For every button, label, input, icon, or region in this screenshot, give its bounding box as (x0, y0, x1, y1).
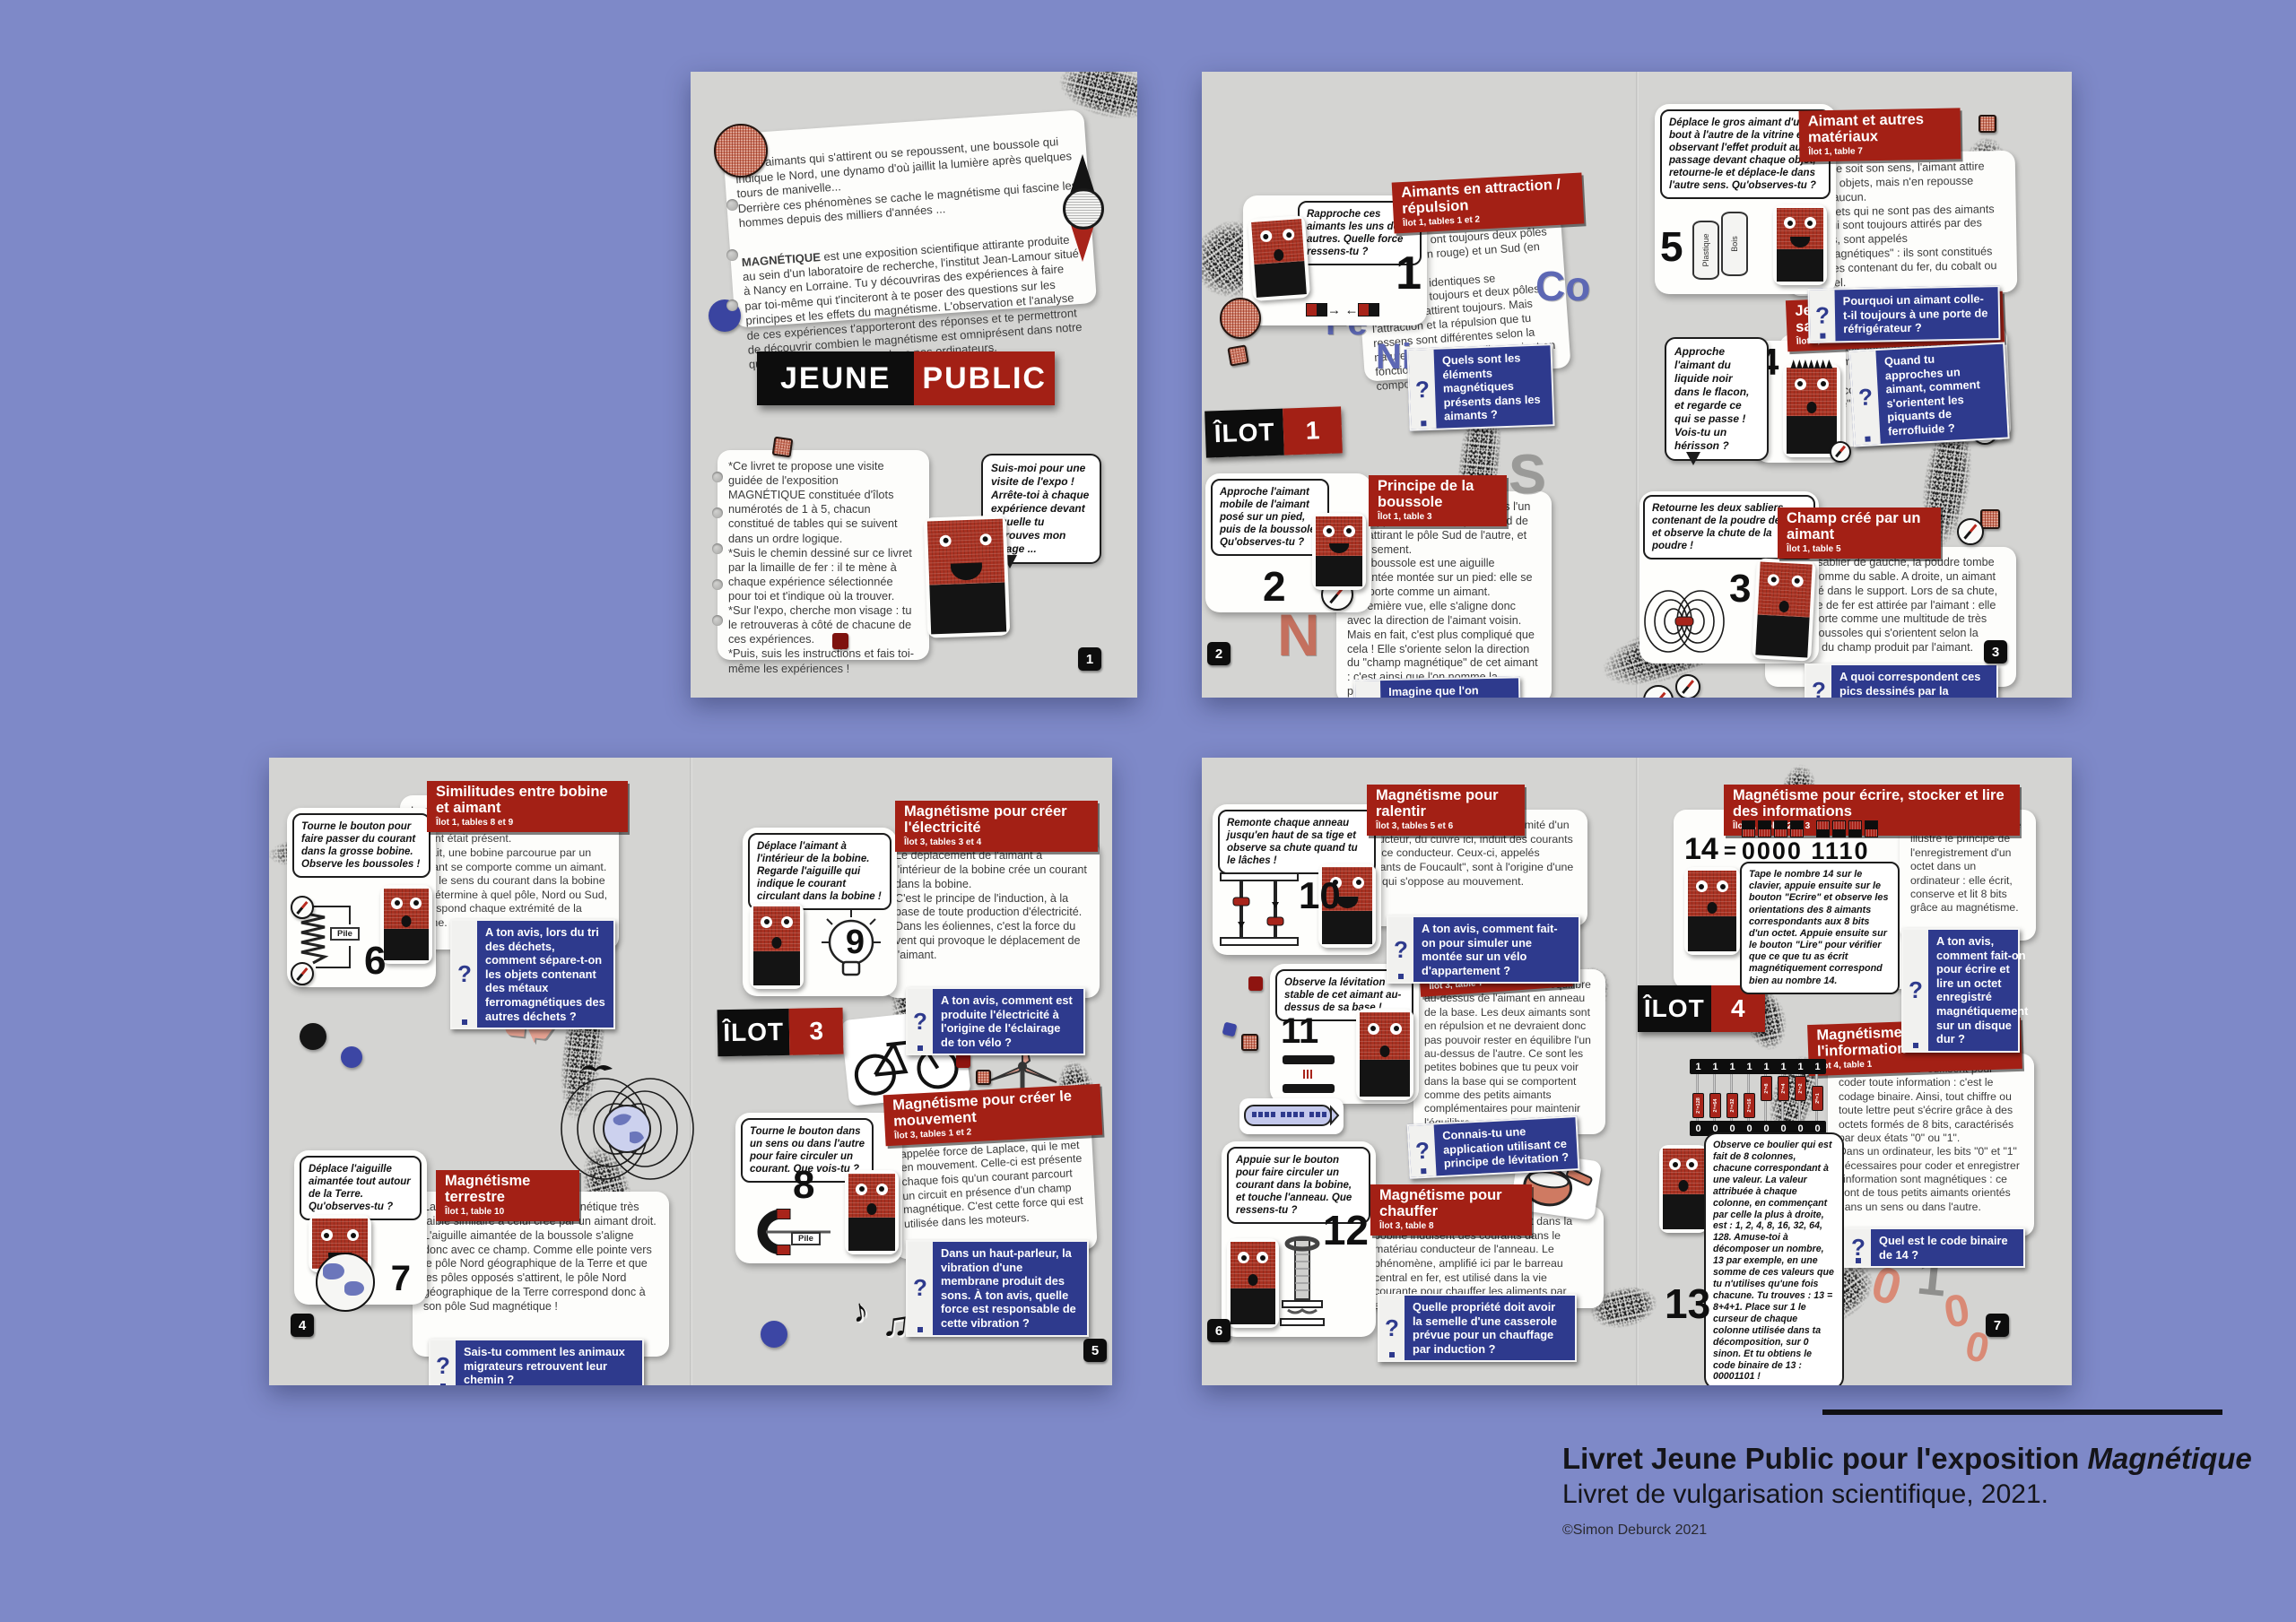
experiment-12-group: Appuie sur le bouton pour faire circuler… (1222, 1141, 1376, 1337)
ilot-label: ÎLOT (1205, 409, 1284, 458)
magnet-character (1752, 558, 1816, 661)
section-title-text: Magnétisme terrestre (445, 1174, 570, 1206)
compass-icon (1830, 441, 1851, 463)
section-title-text: Magnétisme pour chauffer (1379, 1188, 1523, 1220)
plastic-cylinder: Plastique (1692, 221, 1719, 280)
magnet-character (1773, 204, 1827, 285)
caption-subtitle: Livret de vulgarisation scientifique, 20… (1562, 1479, 2048, 1510)
experiment-9-bubble: Déplace l'aimant à l'intérieur de la bob… (748, 833, 891, 910)
binder-dot (726, 249, 738, 261)
magnet-character (924, 515, 1011, 638)
experiment-6-group: Tourne le bouton pour faire passer du co… (287, 808, 436, 987)
experiment-13-bubble: Observe ce boulier qui est fait de 8 col… (1704, 1132, 1844, 1385)
equals-sign: = (1724, 840, 1736, 863)
question-text: A ton avis, comment fait-on pour simuler… (1413, 917, 1578, 982)
section-title-text: Magnétisme pour ralentir (1376, 788, 1516, 820)
battery-label: Pile (330, 927, 360, 941)
question-box-champ: ? A quoi correspondent ces pics dessinés… (1805, 664, 1998, 698)
battery-label: Pile (791, 1232, 821, 1245)
magnet-character (380, 885, 432, 964)
magnet-character (1659, 1145, 1708, 1233)
caption-rule (1822, 1409, 2222, 1415)
experiment-8-group: Tourne le bouton dans un sens ou dans l'… (735, 1113, 902, 1263)
experiment-2-group: Approche l'aimant mobile de l'aimant pos… (1205, 473, 1371, 612)
cover-intro-paragraph-1: Deux aimants qui s'attirent ou se repous… (735, 134, 1080, 230)
blue-square-decoration (1222, 1022, 1238, 1037)
magnet-character (845, 1170, 899, 1254)
question-mark-icon: ? (1388, 917, 1413, 982)
ilot-label: ÎLOT (1638, 985, 1711, 1032)
binder-dot (712, 579, 723, 590)
bit-magnets (1742, 820, 1878, 837)
cover-title-left: JEUNE (757, 351, 914, 405)
question-mark-icon: ? (1903, 930, 1928, 1051)
section-location: Îlot 1, tables 8 et 9 (436, 818, 619, 828)
question-box-electricite: ? A ton avis, comment est produite l'éle… (906, 987, 1085, 1055)
induction-coil-icon (1277, 1231, 1327, 1331)
bird-icon (578, 1059, 614, 1079)
experiment-number: 11 (1281, 1011, 1318, 1052)
bit-digits: 0000 1110 (1742, 839, 1870, 863)
page-number: 1 (1078, 647, 1101, 671)
question-text: Quels sont les éléments magnétiques prés… (1433, 345, 1552, 429)
experiment-number: 10 (1299, 874, 1341, 917)
binary-abacus: 1111 1111 0000 0000 2⁷=128 2⁶=64 2⁵=32 2… (1690, 1059, 1826, 1136)
question-text: Dans un haut-parleur, la vibration d'une… (933, 1242, 1087, 1335)
compass-rose-icon (1065, 154, 1100, 262)
question-text: Connais-tu une application utilisant ce … (1434, 1117, 1578, 1175)
cover-intro-card: Deux aimants qui s'attirent ou se repous… (722, 109, 1097, 328)
experiment-6-bubble: Tourne le bouton pour faire passer du co… (292, 813, 430, 878)
compass-icon (1675, 674, 1700, 698)
magnet-character (1356, 1009, 1413, 1100)
cylinder-label: Bois (1730, 236, 1739, 252)
binder-dot (712, 615, 723, 626)
spread-pages-2-3: Rapproche ces aimants les uns des autres… (1202, 72, 2072, 698)
section-location: Îlot 3, table 8 (1379, 1221, 1523, 1231)
binder-dot (726, 199, 738, 211)
hatched-square-decoration (976, 1070, 991, 1085)
section-title-text: Magnétisme pour créer l'électricité (904, 804, 1089, 837)
section-title-attraction: Aimants en attraction / répulsion Îlot 1… (1392, 172, 1585, 233)
ilot-badge-3: ÎLOT 3 (717, 1008, 844, 1056)
section-location: Îlot 3, tables 3 et 4 (904, 837, 1089, 847)
cover-page: Deux aimants qui s'attirent ou se repous… (691, 72, 1137, 698)
caption-title-main: Livret Jeune Public pour l'exposition (1562, 1442, 2087, 1475)
question-text: Quel est le code binaire de 14 ? (1871, 1229, 2023, 1266)
question-box-coder: ? Quel est le code binaire de 14 ? (1844, 1227, 2025, 1268)
experiment-4-bubble: Approche l'aimant du liquide noir dans l… (1665, 337, 1769, 461)
experiment-7-bubble: Déplace l'aiguille aimantée tout autour … (300, 1156, 422, 1220)
section-title-chauffer: Magnétisme pour chauffer Îlot 3, table 8 (1370, 1184, 1532, 1236)
horseshoe-magnet-icon (739, 1206, 839, 1258)
binder-dot (712, 507, 723, 518)
magnet-character (750, 903, 804, 989)
ilot-number: 3 (789, 1008, 843, 1055)
experiment-11-group: Observe la lévitation stable de cet aima… (1270, 964, 1419, 1104)
experiment-7-group: Déplace l'aiguille aimantée tout autour … (294, 1150, 427, 1305)
experiment-number: 8 (793, 1163, 814, 1208)
binder-dot (712, 472, 723, 482)
question-box-ralentir: ? A ton avis, comment fait-on pour simul… (1387, 915, 1580, 984)
question-text: A ton avis, comment fait-on pour écrire … (1928, 930, 2036, 1051)
hatched-square-decoration (772, 437, 794, 458)
experiment-10-group: Remonte chaque anneau jusqu'en haut de s… (1213, 804, 1381, 955)
wood-cylinder: Bois (1721, 212, 1748, 276)
section-title-materiaux: Aimant et autres matériaux Îlot 1, table… (1799, 108, 1961, 161)
section-location: Îlot 1, table 10 (445, 1207, 570, 1217)
ilot-number: 1 (1283, 406, 1342, 455)
question-text: Imagine que l'on place une forêt de tout… (1380, 678, 1520, 698)
experiment-9-group: Déplace l'aimant à l'intérieur de la bob… (743, 828, 897, 996)
magnet-character (1684, 867, 1740, 955)
hatched-circle-decoration (1220, 298, 1261, 339)
ring-drop-icon (1216, 869, 1302, 950)
experiment-number: 9 (846, 924, 865, 962)
question-mark-icon: ? (1379, 1296, 1405, 1360)
byte-value: 14 (1684, 836, 1718, 863)
cylinder-label: Plastique (1701, 233, 1710, 266)
cover-title: JEUNE PUBLIC (757, 351, 1055, 405)
question-mark-icon: ? (908, 989, 933, 1054)
caption-title-italic: Magnétique (2087, 1442, 2251, 1475)
question-mark-icon: ? (1810, 290, 1836, 341)
question-box-leviter: ? Connais-tu une application utilisant c… (1407, 1115, 1580, 1179)
question-mark-icon: ? (1806, 665, 1831, 698)
question-text: A ton avis, comment est produite l'élect… (933, 989, 1083, 1054)
question-box-bobine: ? A ton avis, lors du tri des déchets, c… (450, 919, 615, 1029)
magnet-character (1312, 513, 1366, 590)
compass-icon (291, 896, 314, 919)
experiment-14-bubble: Tape le nombre 14 sur le clavier, appuie… (1740, 862, 1900, 994)
question-mark-icon: ? (1409, 350, 1437, 429)
question-mark-icon: ? (452, 921, 477, 1028)
question-text: Quelle propriété doit avoir la semelle d… (1405, 1296, 1575, 1360)
spread-pages-6-7: Magnétisme pour ralentir Îlot 3, tables … (1202, 758, 2072, 1385)
hatched-circle-decoration (714, 124, 768, 178)
compass-icon (291, 962, 314, 985)
section-title-text: Aimant et autres matériaux (1808, 112, 1952, 146)
question-text: Sais-tu comment les animaux migrateurs r… (456, 1340, 642, 1385)
question-text: A quoi correspondent ces pics dessinés p… (1831, 665, 1996, 698)
section-location: Îlot 1, table 3 (1378, 512, 1498, 522)
question-mark-icon: ? (908, 1242, 933, 1335)
section-location: Îlot 1, table 7 (1808, 144, 1952, 157)
binder-dot (712, 543, 723, 554)
experiment-number: 3 (1729, 567, 1751, 612)
red-square-decoration (1248, 976, 1263, 991)
section-location: Îlot 3, tables 5 et 6 (1376, 821, 1516, 831)
page-number: 2 (1207, 642, 1231, 665)
hatched-square-decoration (1980, 509, 2000, 529)
field-lines-icon (1641, 585, 1727, 658)
question-box-mouvement: ? Dans un haut-parleur, la vibration d'u… (906, 1240, 1089, 1337)
cover-title-right: PUBLIC (914, 351, 1055, 405)
experiment-number: 12 (1323, 1206, 1369, 1254)
page-number: 5 (1083, 1339, 1107, 1362)
hedgehog-magnet-character (1783, 364, 1840, 457)
section-title-bobine: Similitudes entre bobine et aimant Îlot … (427, 781, 628, 832)
section-title-boussole: Principe de la boussole Îlot 1, table 3 (1369, 475, 1507, 526)
experiment-number: 7 (391, 1259, 411, 1299)
cover-guide-card: *Ce livret te propose une visite guidée … (717, 450, 929, 660)
ilot-label: ÎLOT (717, 1009, 790, 1056)
blue-circle-decoration (341, 1046, 362, 1068)
page-number: 6 (1207, 1319, 1231, 1342)
byte-display: 14 = 0000 1110 (1684, 820, 1878, 863)
element-symbol-co: Co (1535, 262, 1590, 310)
levitation-icon (1277, 1052, 1340, 1098)
experiment-number: 2 (1263, 562, 1286, 611)
ilot-badge-1: ÎLOT 1 (1205, 406, 1343, 457)
magnets-illustration: → ← (1306, 302, 1379, 318)
earth-field-icon (558, 1073, 697, 1185)
letter-s-decoration: S (1509, 443, 1545, 507)
question-box-chauffer: ? Quelle propriété doit avoir la semelle… (1378, 1294, 1577, 1362)
hatched-square-decoration (1227, 344, 1248, 366)
question-mark-icon: ? (1355, 681, 1382, 698)
train-icon (1239, 1098, 1344, 1134)
page-number: 3 (1984, 640, 2007, 664)
question-text: Quand tu approches un aimant, comment s'… (1875, 344, 2007, 444)
blue-circle-decoration (761, 1321, 787, 1348)
caption-title: Livret Jeune Public pour l'exposition Ma… (1562, 1442, 2252, 1476)
question-mark-icon: ? (1850, 351, 1880, 445)
question-box-materiaux: ? Pourquoi un aimant colle-t-il toujours… (1807, 285, 2000, 343)
experiment-number: 6 (364, 939, 386, 984)
magnet-character (1227, 1238, 1279, 1328)
black-circle-decoration (300, 1023, 326, 1050)
question-box-ecrire: ? A ton avis, comment fait-on pour écrir… (1901, 928, 2020, 1053)
section-title-terrestre: Magnétisme terrestre Îlot 1, table 10 (436, 1170, 579, 1221)
section-body-coder: Des "0" et des "1" suffisent pour coder … (1828, 1054, 2034, 1236)
question-mark-icon: ? (430, 1340, 456, 1385)
question-box-boussole: ? Imagine que l'on place une forêt de to… (1353, 676, 1522, 698)
section-body-electricite: Le déplacement de l'aimant à l'intérieur… (884, 840, 1100, 998)
section-title-champ: Champ créé par un aimant Îlot 1, table 5 (1778, 507, 1941, 559)
question-mark-icon: ? (1846, 1229, 1871, 1266)
page-number: 7 (1986, 1314, 2009, 1337)
question-box-herisson: ? Quand tu approches un aimant, comment … (1848, 343, 2009, 447)
hatched-square-decoration (1241, 1034, 1258, 1051)
music-note-icon: ♪ (849, 1291, 871, 1331)
abacus-ones-row: 1111 1111 (1690, 1059, 1826, 1074)
portfolio-page: Deux aimants qui s'attirent ou se repous… (0, 0, 2296, 1622)
experiment-number: 5 (1660, 222, 1683, 271)
experiment-number: 13 (1665, 1279, 1710, 1328)
red-square-decoration (832, 633, 848, 649)
question-box-terrestre: ? Sais-tu comment les animaux migrateurs… (429, 1339, 644, 1385)
section-location: Îlot 1, table 5 (1787, 544, 1932, 554)
section-title-text: Magnétisme pour écrire, stocker et lire … (1733, 788, 2011, 820)
section-title-ralentir: Magnétisme pour ralentir Îlot 3, tables … (1367, 785, 1525, 836)
question-text: A ton avis, lors du tri des déchets, com… (477, 921, 613, 1028)
page-number: 4 (291, 1314, 314, 1337)
binder-dot (726, 299, 738, 311)
section-title-text: Similitudes entre bobine et aimant (436, 785, 619, 817)
earth-icon (316, 1253, 375, 1312)
spread-pages-4-5: Similitudes entre bobine et aimant Îlot … (269, 758, 1112, 1385)
section-title-electricite: Magnétisme pour créer l'électricité Îlot… (895, 801, 1098, 852)
question-box-attraction: ? Quels sont les éléments magnétiques pr… (1406, 343, 1554, 431)
question-text: Pourquoi un aimant colle-t-il toujours à… (1835, 287, 1999, 341)
magnet-character (1248, 215, 1310, 301)
question-mark-icon: ? (1409, 1124, 1437, 1176)
caption-credit: ©Simon Deburck 2021 (1562, 1522, 1707, 1539)
hatched-square-decoration (1979, 115, 1996, 133)
compass-icon (1957, 518, 1984, 545)
section-title-text: Principe de la boussole (1378, 479, 1498, 511)
section-title-text: Champ créé par un aimant (1787, 511, 1932, 543)
experiment-number: 1 (1396, 247, 1422, 300)
